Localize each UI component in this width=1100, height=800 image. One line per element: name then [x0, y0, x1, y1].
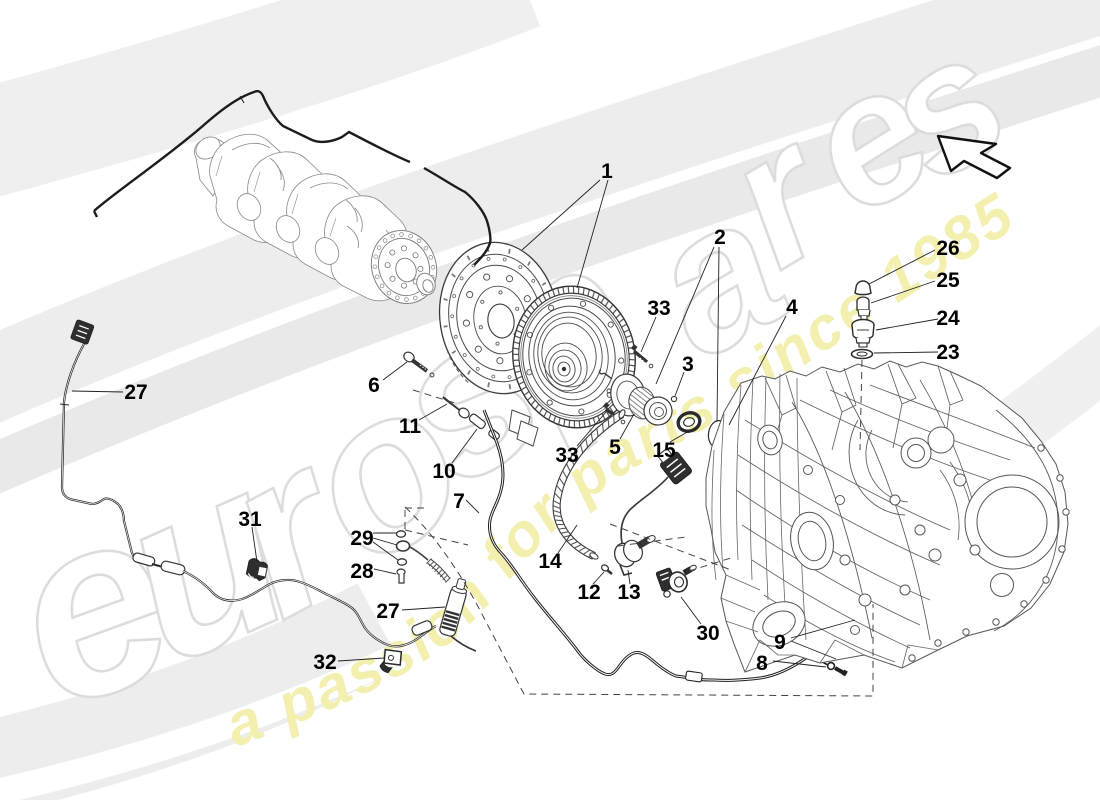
svg-text:27: 27 [124, 381, 147, 404]
svg-text:2: 2 [714, 226, 726, 249]
svg-text:9: 9 [774, 631, 786, 654]
svg-text:4: 4 [786, 296, 798, 319]
svg-text:12: 12 [577, 581, 600, 604]
svg-text:5: 5 [609, 436, 621, 459]
svg-text:3: 3 [682, 353, 694, 376]
svg-text:30: 30 [696, 622, 719, 645]
svg-text:10: 10 [432, 460, 455, 483]
svg-text:28: 28 [350, 560, 374, 583]
svg-text:13: 13 [617, 581, 640, 604]
svg-text:24: 24 [936, 307, 960, 330]
svg-text:33: 33 [555, 444, 578, 467]
svg-text:25: 25 [936, 269, 960, 292]
svg-text:33: 33 [647, 297, 670, 320]
svg-text:6: 6 [368, 374, 380, 397]
svg-text:26: 26 [936, 237, 959, 260]
svg-text:7: 7 [453, 490, 465, 513]
svg-text:32: 32 [313, 651, 336, 674]
svg-text:27: 27 [376, 600, 399, 623]
svg-text:8: 8 [756, 652, 768, 675]
svg-text:31: 31 [238, 508, 262, 531]
svg-text:1: 1 [601, 160, 613, 183]
svg-text:14: 14 [538, 550, 562, 573]
svg-text:15: 15 [652, 439, 676, 462]
svg-text:11: 11 [399, 415, 422, 438]
svg-text:23: 23 [936, 341, 959, 364]
svg-text:29: 29 [350, 527, 373, 550]
